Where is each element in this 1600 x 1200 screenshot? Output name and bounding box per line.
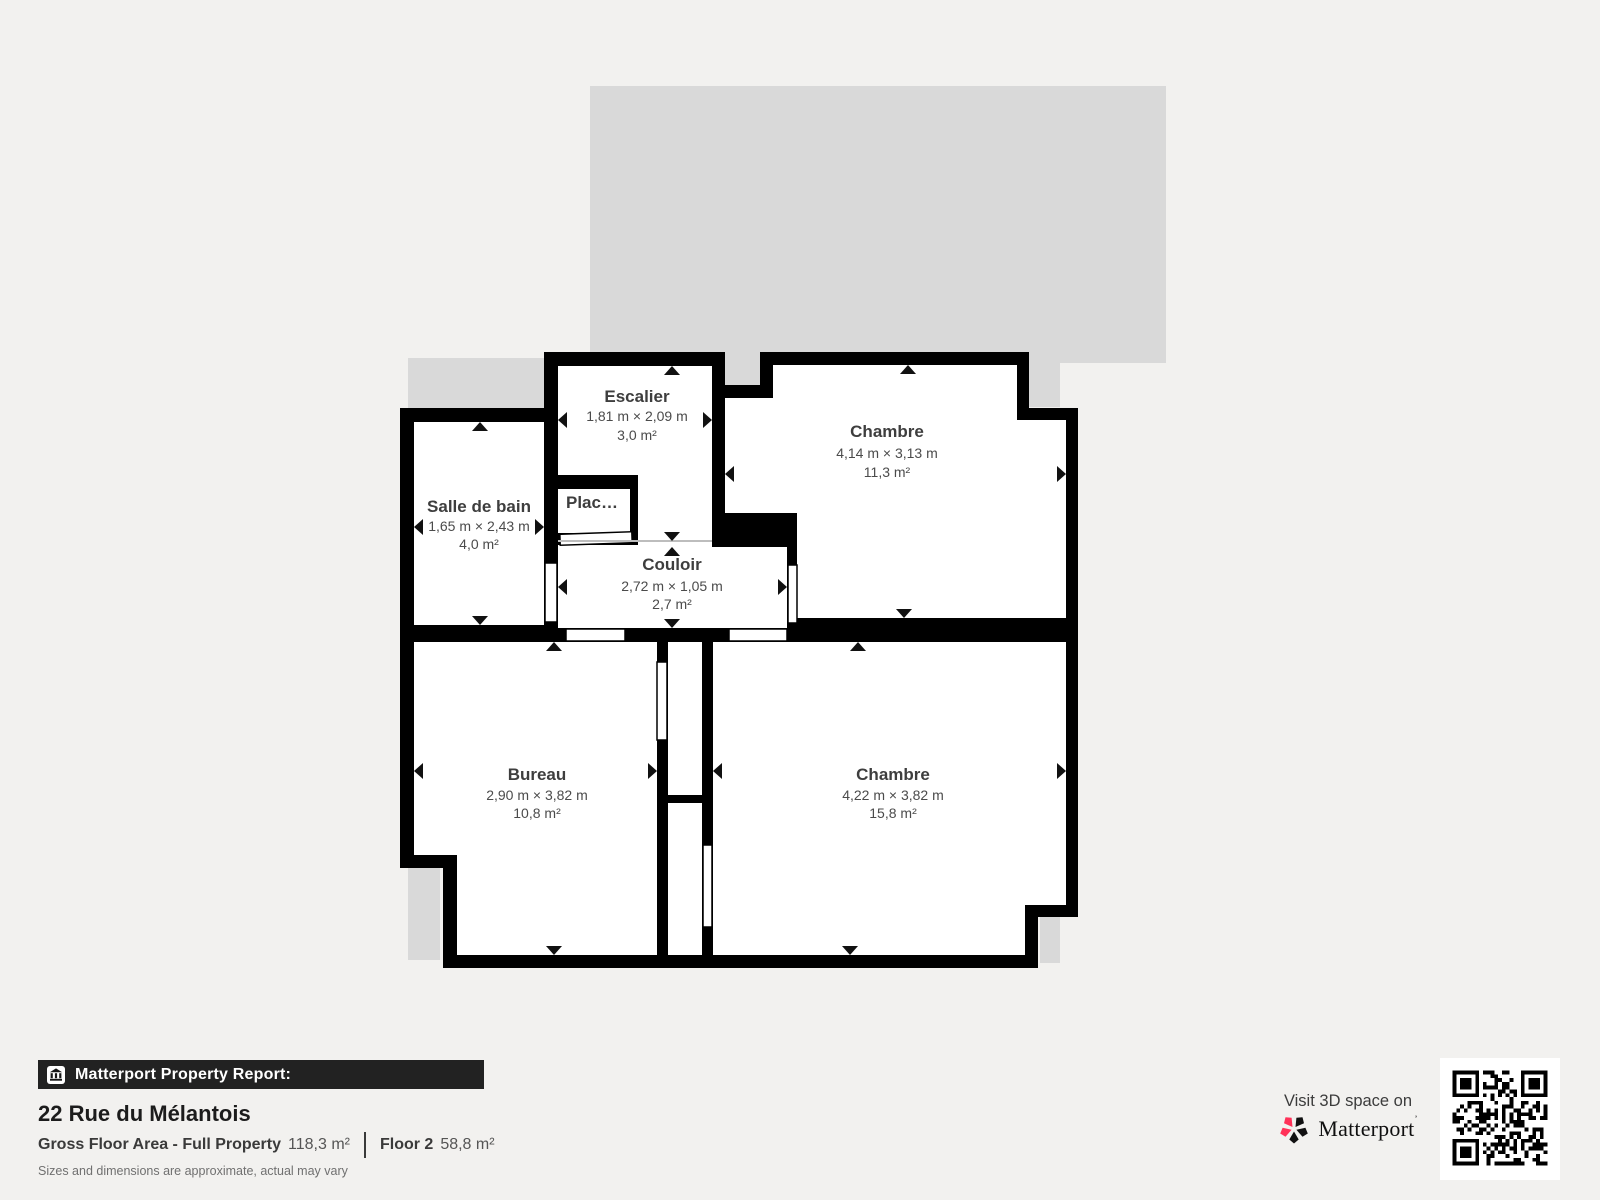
door-chambre-bottom-shaft <box>703 845 712 927</box>
meta-divider <box>364 1132 366 1158</box>
room-area-bureau: 10,8 m² <box>513 805 561 821</box>
underlay-notch-bottomright <box>1040 917 1060 963</box>
room-dims-salle-de-bain: 1,65 m × 2,43 m <box>428 518 530 534</box>
room-dims-bureau: 2,90 m × 3,82 m <box>486 787 588 803</box>
room-area-chambre-bottom: 15,8 m² <box>869 805 917 821</box>
room-title-chambre-bottom: Chambre <box>856 765 930 784</box>
room-title-salle-de-bain: Salle de bain <box>427 497 531 516</box>
room-title-couloir: Couloir <box>642 555 702 574</box>
room-dims-escalier: 1,81 m × 2,09 m <box>586 408 688 424</box>
door-placard <box>560 532 632 546</box>
gfa-label: Gross Floor Area - Full Property <box>38 1132 281 1158</box>
door-bureau-shaft <box>657 662 667 740</box>
property-address: 22 Rue du Mélantois <box>38 1101 251 1127</box>
underlay-notch-topleft <box>725 360 760 386</box>
room-dims-chambre-top: 4,14 m × 3,13 m <box>836 445 938 461</box>
door-couloir-bureau <box>566 629 625 641</box>
room-area-chambre-top: 11,3 m² <box>864 464 911 480</box>
shaft-floor-upper <box>668 642 702 795</box>
shaft-floor-lower <box>668 803 702 955</box>
door-couloir-salle-de-bain <box>545 563 557 622</box>
matterport-wordmark: Matterport’ <box>1318 1116 1417 1142</box>
room-dims-chambre-bottom: 4,22 m × 3,82 m <box>842 787 944 803</box>
floor-value: 58,8 m² <box>440 1132 494 1158</box>
underlay-top-block <box>590 86 1166 363</box>
visit-3d-label: Visit 3D space on <box>1250 1092 1446 1111</box>
matterport-logo-icon <box>1278 1113 1310 1145</box>
floor-label: Floor 2 <box>380 1132 433 1158</box>
room-floor-chambre-top-d <box>797 513 1066 618</box>
floor-plan: Escalier 1,81 m × 2,09 m 3,0 m² Chambre … <box>0 0 1600 1200</box>
underlay-notch-topright <box>1029 363 1060 407</box>
room-area-couloir: 2,7 m² <box>652 596 692 612</box>
report-bar: Matterport Property Report: <box>38 1060 484 1089</box>
room-title-placard: Plac… <box>566 493 618 512</box>
room-dims-couloir: 2,72 m × 1,05 m <box>621 578 723 594</box>
room-title-bureau: Bureau <box>508 765 567 784</box>
disclaimer-text: Sizes and dimensions are approximate, ac… <box>38 1164 348 1178</box>
property-report-icon <box>47 1066 65 1084</box>
report-bar-label: Matterport Property Report: <box>75 1066 291 1084</box>
underlay-notch-bottomleft <box>408 868 440 960</box>
room-area-salle-de-bain: 4,0 m² <box>459 536 499 552</box>
area-meta-line: Gross Floor Area - Full Property 118,3 m… <box>38 1132 495 1158</box>
qr-code <box>1440 1058 1560 1185</box>
gfa-value: 118,3 m² <box>288 1132 350 1158</box>
matterport-brand: Matterport’ <box>1250 1113 1446 1145</box>
door-couloir-chambre-top <box>788 565 797 623</box>
room-title-escalier: Escalier <box>604 387 670 406</box>
room-title-chambre-top: Chambre <box>850 422 924 441</box>
door-couloir-chambre-bottom <box>729 629 787 641</box>
room-area-escalier: 3,0 m² <box>617 427 657 443</box>
trademark-mark: ’ <box>1414 1114 1417 1124</box>
